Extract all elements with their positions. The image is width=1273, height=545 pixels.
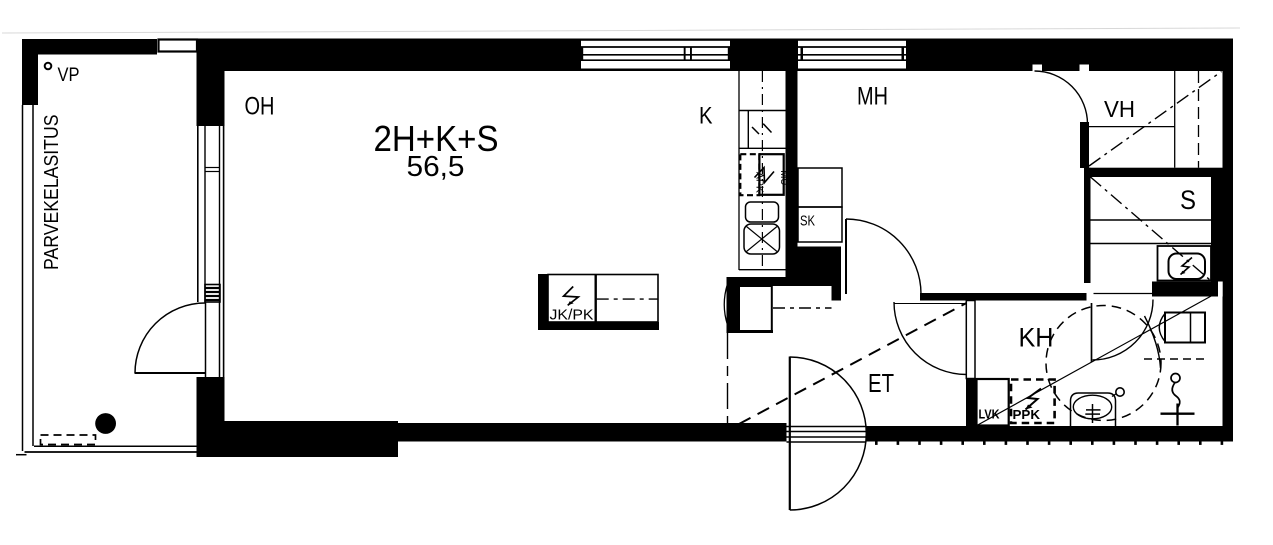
svg-text:LVK: LVK [979, 407, 1000, 421]
svg-text:56,5: 56,5 [407, 151, 465, 183]
svg-text:SK: SK [800, 213, 815, 230]
svg-text:MU: MU [778, 170, 790, 185]
svg-text:MH: MH [857, 83, 888, 111]
svg-text:VP: VP [58, 65, 80, 86]
svg-text:K: K [699, 102, 713, 129]
svg-text:PARVEKELASITUS: PARVEKELASITUS [40, 115, 63, 271]
svg-text:PPK: PPK [1013, 408, 1041, 422]
svg-text:APK: APK [753, 172, 765, 193]
svg-text:VH: VH [1104, 96, 1135, 122]
svg-text:OH: OH [245, 93, 275, 121]
svg-text:JK/PK: JK/PK [550, 308, 594, 324]
svg-text:KH: KH [1019, 323, 1054, 353]
svg-text:S: S [1180, 185, 1196, 215]
svg-text:ET: ET [868, 368, 894, 398]
